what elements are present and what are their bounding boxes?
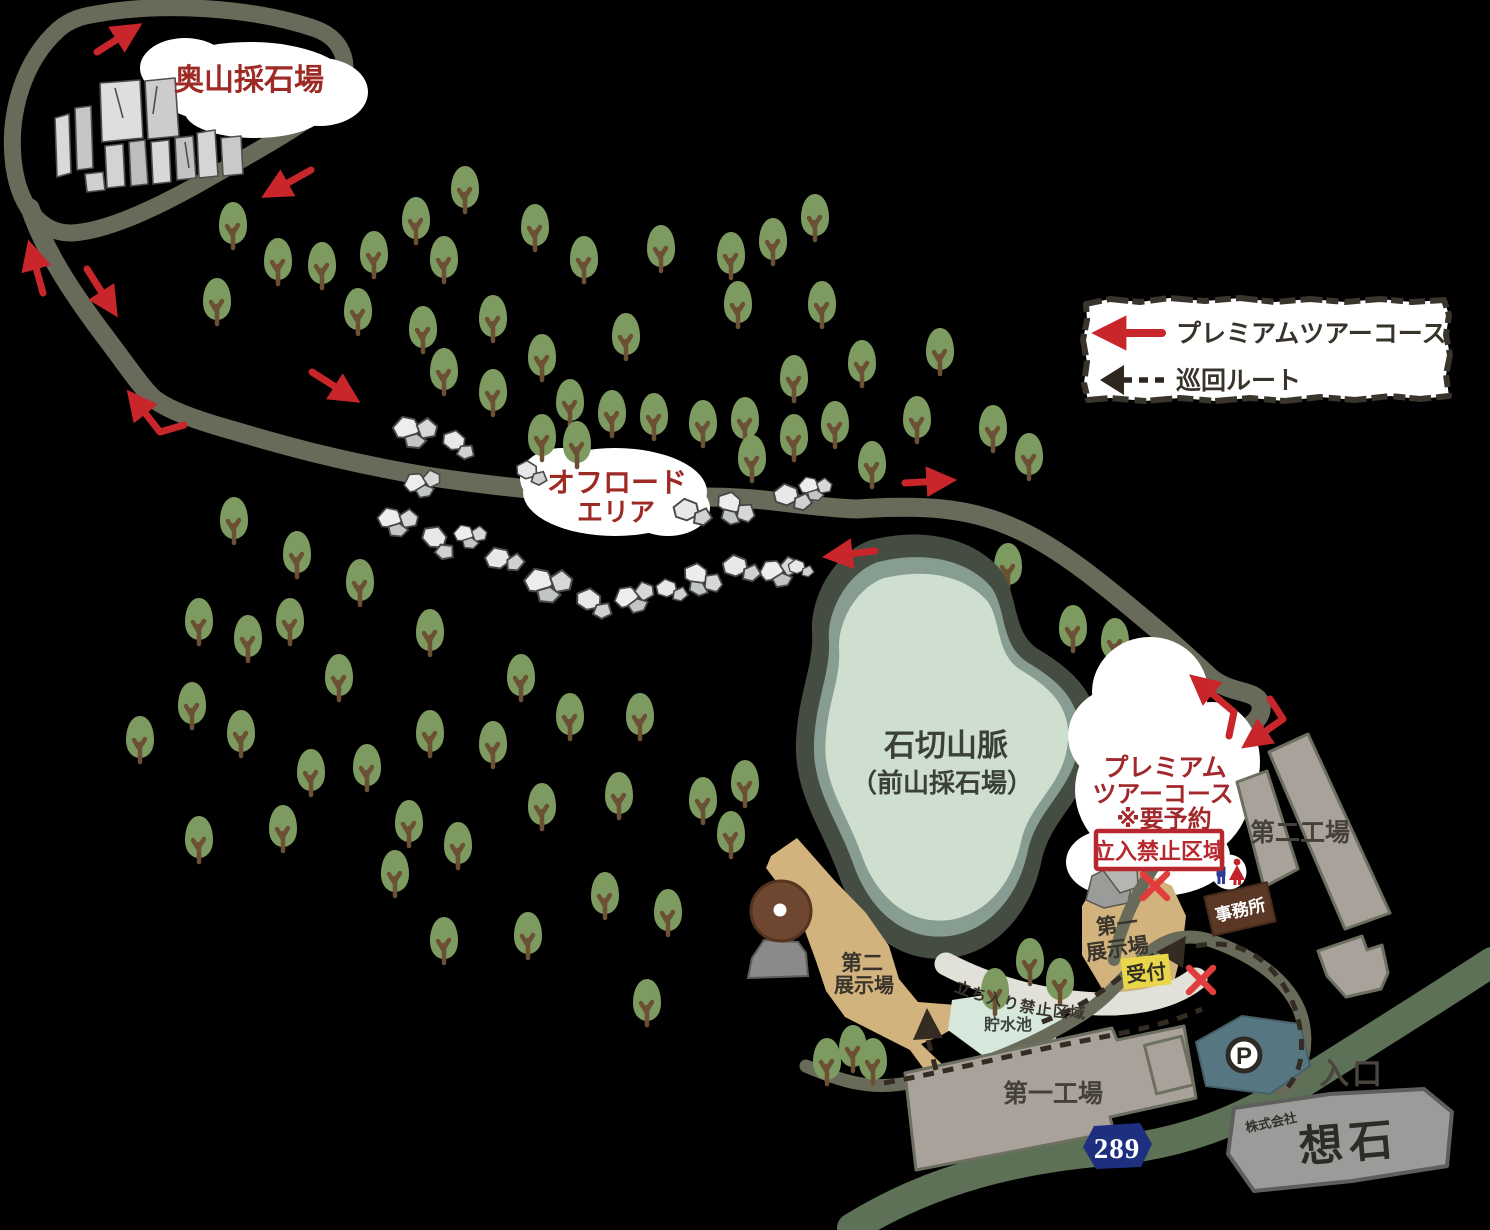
- boulder-icon: [438, 427, 479, 462]
- tree-icon: [126, 716, 154, 762]
- route-arrow: [33, 257, 43, 293]
- tree-icon: [264, 238, 292, 284]
- tree-icon: [297, 749, 325, 795]
- tree-icon: [507, 654, 535, 700]
- exhibition2-label-line2: 展示場: [834, 974, 894, 997]
- premium-label-line2: ツアーコース: [1092, 781, 1233, 808]
- tree-icon: [479, 369, 507, 415]
- route-arrow: [840, 551, 875, 555]
- tree-icon: [346, 559, 374, 605]
- premium-label-line3: ※要予約: [1116, 805, 1211, 833]
- tree-icon: [528, 783, 556, 829]
- tree-icon: [178, 682, 206, 728]
- boulder-icon: [573, 586, 617, 621]
- parking-icon: P: [1228, 1039, 1260, 1071]
- tree-icon: [402, 197, 430, 243]
- tree-icon: [395, 800, 423, 846]
- millstone-icon: [748, 881, 811, 978]
- legend-patrol-label: 巡回ルート: [1176, 367, 1301, 395]
- offroad-label-line1: オフロード: [547, 467, 687, 498]
- boulder-icon: [416, 521, 462, 563]
- tree-icon: [430, 348, 458, 394]
- boulder-icon: [484, 543, 526, 576]
- legend-premium-label: プレミアムツアーコース: [1176, 320, 1447, 348]
- tree-icon: [717, 232, 745, 278]
- route-arrow: [312, 372, 345, 393]
- exhibition2-label-line1: 第二: [841, 951, 883, 975]
- tree-icon: [360, 231, 388, 277]
- tree-icon: [430, 917, 458, 963]
- boulder-icon: [524, 569, 572, 603]
- tree-icon: [479, 295, 507, 341]
- tree-icon: [444, 822, 472, 868]
- tree-icon: [203, 278, 231, 324]
- boulder-icon: [393, 417, 437, 448]
- tree-icon: [521, 204, 549, 250]
- entrance-label: 入口: [1319, 1058, 1385, 1091]
- tree-icon: [801, 194, 829, 240]
- premium-label-line1: プレミアム: [1103, 754, 1226, 782]
- tree-icon: [283, 531, 311, 577]
- tree-icon: [269, 805, 297, 851]
- tree-icon: [479, 721, 507, 767]
- route-arrow: [97, 33, 127, 52]
- route-badge-number: 289: [1094, 1133, 1141, 1165]
- tree-icon: [731, 760, 759, 806]
- route-arrow: [905, 481, 939, 483]
- tree-icon: [430, 236, 458, 282]
- tree-icon: [926, 328, 954, 374]
- tree-icon: [451, 166, 479, 212]
- tree-icon: [1059, 605, 1087, 651]
- office-building: 事務所: [1204, 882, 1275, 935]
- tree-icon: [344, 288, 372, 334]
- tree-icon: [654, 889, 682, 935]
- boulder-icon: [723, 555, 761, 581]
- company-logo-calligraphy: 想石: [1297, 1115, 1401, 1173]
- tree-icon: [612, 313, 640, 359]
- mountain-label-line1: 石切山脈: [883, 728, 1008, 763]
- tree-icon: [633, 979, 661, 1025]
- tree-icon: [219, 202, 247, 248]
- boulder-icon: [454, 525, 487, 548]
- boulder-icon: [377, 508, 418, 537]
- okuyama-quarry-label: 奥山採石場: [174, 63, 324, 97]
- tree-icon: [717, 811, 745, 857]
- tree-icon: [1015, 433, 1043, 479]
- tree-icon: [859, 1038, 887, 1084]
- boulder-icon: [656, 579, 688, 601]
- boulder-icon: [611, 578, 659, 619]
- tree-icon: [821, 401, 849, 447]
- factory2-label: 第二工場: [1250, 818, 1350, 847]
- tree-icon: [220, 497, 248, 543]
- tree-icon: [514, 912, 542, 958]
- tree-icon: [759, 218, 787, 264]
- tree-icon: [780, 355, 808, 401]
- tree-icon: [234, 615, 262, 661]
- factory2-annex: [1318, 936, 1388, 997]
- tree-icon: [780, 414, 808, 460]
- quarry-map: P 立入禁止区域 奥山採石場 オフロード エリア 石切山脈 （前山採石場） プレ…: [0, 0, 1490, 1230]
- tree-icon: [185, 816, 213, 862]
- tree-icon: [227, 710, 255, 756]
- factory1-label: 第一工場: [1003, 1079, 1103, 1108]
- tree-icon: [381, 850, 409, 896]
- mountain-label-line2: （前山採石場）: [851, 768, 1033, 798]
- route-arrow: [277, 170, 311, 189]
- tree-icon: [724, 281, 752, 327]
- no-entry-sign: 立入禁止区域: [1093, 831, 1225, 869]
- tree-icon: [647, 225, 675, 271]
- tree-icon: [416, 609, 444, 655]
- legend-box: プレミアムツアーコース 巡回ルート: [1083, 298, 1450, 401]
- tree-icon: [416, 710, 444, 756]
- tree-icon: [640, 393, 668, 439]
- tree-icon: [570, 236, 598, 282]
- reception-sign: 受付: [1121, 954, 1172, 990]
- tree-icon: [808, 281, 836, 327]
- tree-icon: [591, 872, 619, 918]
- tree-icon: [979, 405, 1007, 451]
- tree-icon: [738, 435, 766, 481]
- no-entry-label: 立入禁止区域: [1093, 839, 1225, 864]
- tree-icon: [848, 340, 876, 386]
- tree-icon: [528, 334, 556, 380]
- tree-icon: [276, 598, 304, 644]
- tree-icon: [308, 242, 336, 288]
- offroad-label-line2: エリア: [577, 497, 655, 527]
- reservoir-label: 貯水池: [984, 1015, 1032, 1034]
- tree-icon: [353, 744, 381, 790]
- tree-icon: [409, 306, 437, 352]
- tree-icon: [858, 441, 886, 487]
- tree-icon: [689, 777, 717, 823]
- tree-icon: [598, 390, 626, 436]
- tree-icon: [903, 396, 931, 442]
- tree-icon: [626, 693, 654, 739]
- tree-icon: [689, 400, 717, 446]
- parking-letter: P: [1236, 1043, 1252, 1070]
- tree-icon: [325, 654, 353, 700]
- tree-icon: [1016, 938, 1044, 984]
- tree-icon: [185, 598, 213, 644]
- tree-icon: [556, 379, 584, 425]
- tree-icon: [556, 693, 584, 739]
- route-arrow: [87, 269, 108, 302]
- tree-icon: [605, 772, 633, 818]
